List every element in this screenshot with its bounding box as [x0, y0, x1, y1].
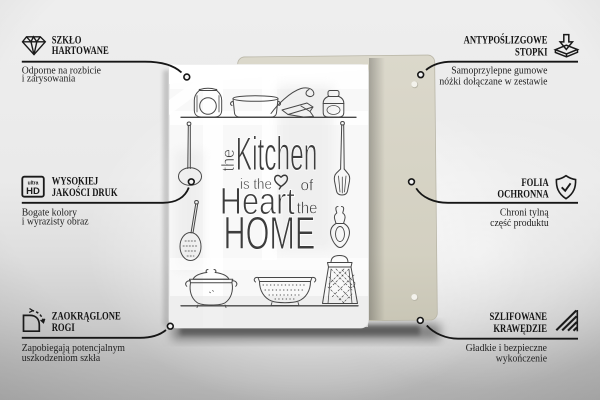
svg-text:HD: HD — [26, 186, 40, 197]
svg-text:ANTYPOŚLIZGOWE: ANTYPOŚLIZGOWE — [464, 33, 548, 47]
svg-text:uszkodzeniom szkła: uszkodzeniom szkła — [22, 353, 101, 365]
svg-text:the: the — [218, 149, 238, 172]
svg-text:Samoprzylepne gumowe: Samoprzylepne gumowe — [451, 65, 548, 77]
svg-text:of: of — [301, 177, 314, 194]
svg-text:nóżki dołączane w zestawie: nóżki dołączane w zestawie — [439, 76, 548, 88]
svg-text:część produktu: część produktu — [490, 218, 549, 230]
svg-text:Kitchen: Kitchen — [236, 128, 317, 181]
svg-text:wykończenie: wykończenie — [496, 353, 548, 365]
svg-text:OCHRONNA: OCHRONNA — [497, 188, 549, 201]
svg-text:i zarysowania: i zarysowania — [22, 73, 76, 85]
svg-text:STOPKI: STOPKI — [515, 46, 547, 59]
svg-text:i wyrazisty obraz: i wyrazisty obraz — [22, 216, 89, 228]
svg-text:JAKOŚCI DRUK: JAKOŚCI DRUK — [52, 186, 119, 200]
svg-text:KRAWĘDZIE: KRAWĘDZIE — [493, 323, 547, 336]
svg-text:HOME: HOME — [224, 208, 316, 260]
svg-text:ROGI: ROGI — [52, 322, 75, 335]
svg-text:HARTOWANE: HARTOWANE — [52, 45, 109, 58]
svg-text:SZLIFOWANE: SZLIFOWANE — [489, 311, 547, 324]
